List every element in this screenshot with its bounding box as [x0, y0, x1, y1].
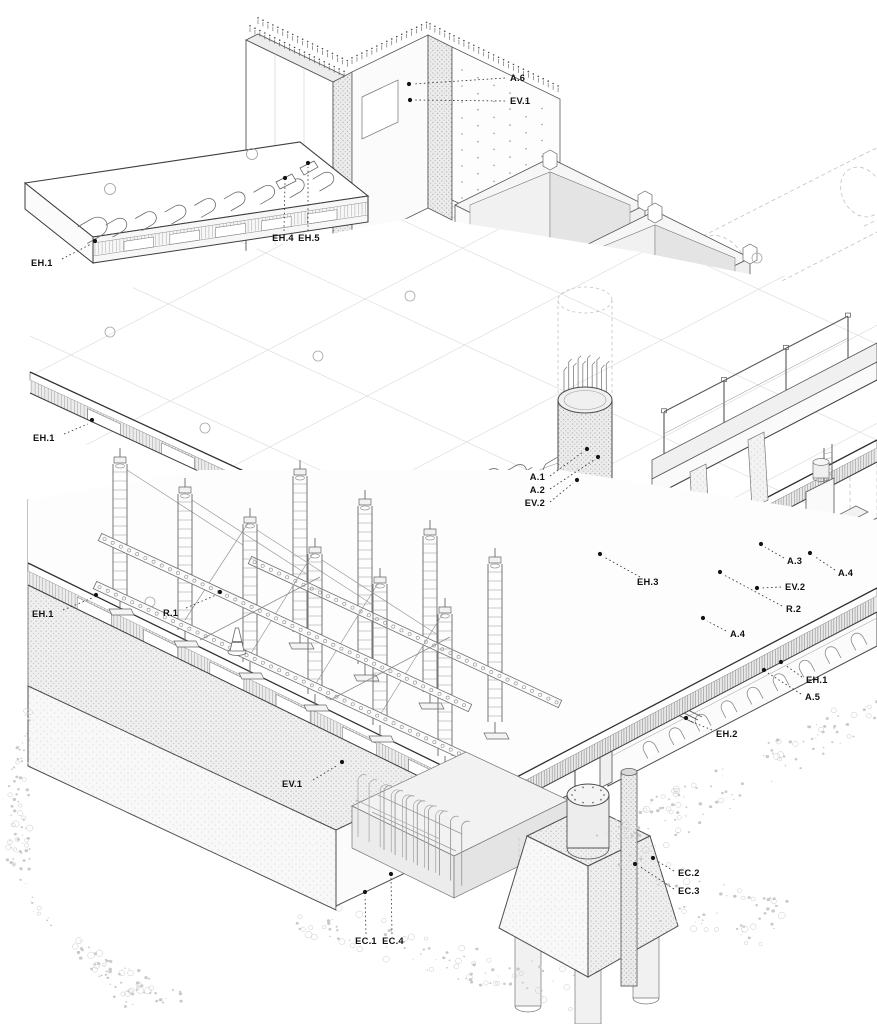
annotation-dot [408, 98, 412, 102]
annotation-dot [808, 551, 812, 555]
annotation-dot [363, 890, 367, 894]
annotation-eh1-b: EH.1 [33, 418, 94, 443]
annotation-label-r1: R.1 [163, 608, 178, 618]
annotation-dot [701, 616, 705, 620]
annotation-label-a5: A.5 [805, 692, 820, 702]
annotation-label-eh1-c: EH.1 [32, 609, 54, 619]
annotation-ec1: EC.1 [355, 890, 377, 946]
annotation-dot [779, 660, 783, 664]
annotation-dot [407, 82, 411, 86]
annotation-label-ec4: EC.4 [382, 936, 404, 946]
annotation-label-eh1-d: EH.1 [806, 675, 828, 685]
annotation-label-ev1-top: EV.1 [510, 96, 530, 106]
annotation-dot [633, 862, 637, 866]
annotation-dot [596, 455, 600, 459]
annotation-label-a4-b: A.4 [730, 629, 746, 639]
annotation-label-ev1-b: EV.1 [282, 779, 302, 789]
annotation-dot [306, 161, 310, 165]
construction-detail-scene: A.6EV.1EH.4EH.5EH.1EH.1EH.1R.1A.1A.2EV.2… [0, 0, 877, 1024]
annotation-dot [94, 593, 98, 597]
annotation-label-r2: R.2 [786, 604, 801, 614]
annotation-label-a2: A.2 [530, 485, 545, 495]
annotation-label-ec3: EC.3 [678, 886, 700, 896]
annotation-dot [759, 542, 763, 546]
annotation-dot [218, 590, 222, 594]
annotation-dot [718, 570, 722, 574]
annotation-label-ec1: EC.1 [355, 936, 377, 946]
annotation-dot [651, 856, 655, 860]
annotation-label-ev2-a: EV.2 [525, 498, 545, 508]
axonometric-construction-drawing: A.6EV.1EH.4EH.5EH.1EH.1EH.1R.1A.1A.2EV.2… [0, 0, 877, 1024]
annotation-label-eh5: EH.5 [298, 233, 320, 243]
annotation-label-eh4: EH.4 [272, 233, 294, 243]
annotation-label-eh3: EH.3 [637, 577, 659, 587]
annotation-dot [575, 478, 579, 482]
annotation-dot [755, 586, 759, 590]
annotation-dot [598, 552, 602, 556]
annotation-label-ev2-b: EV.2 [785, 582, 805, 592]
annotation-dot [90, 418, 94, 422]
annotation-dot [283, 176, 287, 180]
annotation-dot [340, 760, 344, 764]
annotation-label-eh1-b: EH.1 [33, 433, 55, 443]
annotation-label-a1: A.1 [530, 472, 545, 482]
annotation-dot [684, 716, 688, 720]
annotation-label-a6: A.6 [510, 73, 525, 83]
annotation-dot [762, 668, 766, 672]
annotation-label-a4-a: A.4 [838, 568, 854, 578]
annotation-label-a3: A.3 [787, 556, 802, 566]
annotation-label-eh2: EH.2 [716, 729, 738, 739]
annotation-dot [93, 239, 97, 243]
annotation-dot [585, 447, 589, 451]
annotation-label-eh1-a: EH.1 [31, 258, 53, 268]
annotation-dot [389, 872, 393, 876]
annotation-label-ec2: EC.2 [678, 868, 700, 878]
